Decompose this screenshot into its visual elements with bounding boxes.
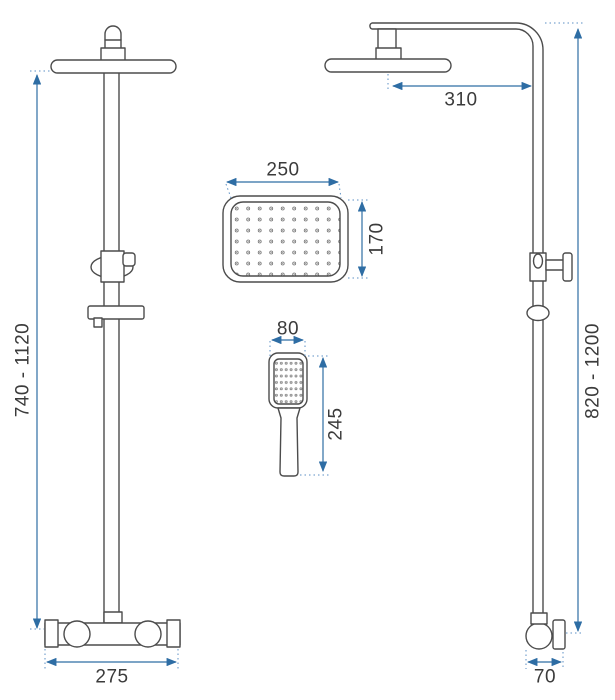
front-view [45, 26, 180, 647]
dim-label-head-depth: 170 [368, 222, 387, 255]
side-ball-joint [526, 623, 552, 649]
side-slider-knob [563, 253, 572, 281]
drawing-svg [0, 0, 615, 700]
rain-head-nozzle-face [231, 202, 340, 276]
hand-shower-handle [278, 408, 300, 476]
front-slider-knob [123, 253, 135, 266]
front-riser-column [104, 64, 119, 622]
front-column-base-connector [104, 612, 122, 623]
hand-shower-view [269, 353, 307, 476]
front-mixer-left-cap [45, 620, 58, 647]
dim-label-front-width: 275 [95, 668, 128, 687]
dim-label-side-height: 820 - 1200 [584, 323, 603, 419]
front-mixer-right-handle [135, 621, 161, 647]
front-mixer-left-handle [64, 621, 90, 647]
side-head-swivel [378, 29, 396, 49]
dim-label-wall-depth: 70 [534, 668, 556, 687]
side-soap-dish-edge [527, 306, 549, 321]
technical-drawing-canvas: 740 - 1120 275 250 170 80 245 310 820 - … [0, 0, 615, 700]
front-rain-head [51, 60, 176, 73]
hand-shower-nozzle-face [274, 359, 303, 404]
front-head-connector [101, 48, 125, 61]
front-soap-dish-clip [94, 318, 102, 327]
side-pipe-fitting [531, 613, 547, 624]
side-wall-flange [553, 620, 565, 649]
side-view [325, 23, 572, 649]
dim-label-side-reach: 310 [444, 91, 477, 110]
dim-label-head-width: 250 [266, 161, 299, 180]
side-riser-pipe-and-arm [370, 23, 543, 615]
rain-head-face-view [223, 196, 348, 282]
dim-label-hand-length: 245 [327, 407, 346, 440]
front-mixer-right-cap [167, 620, 180, 647]
side-slider-arm [546, 260, 564, 270]
dim-label-hand-width: 80 [277, 320, 299, 339]
front-slider-block [101, 251, 124, 282]
side-slider-block [530, 253, 546, 281]
dim-label-front-height: 740 - 1120 [14, 323, 33, 417]
side-rain-head [325, 59, 451, 72]
front-soap-dish [88, 306, 144, 319]
